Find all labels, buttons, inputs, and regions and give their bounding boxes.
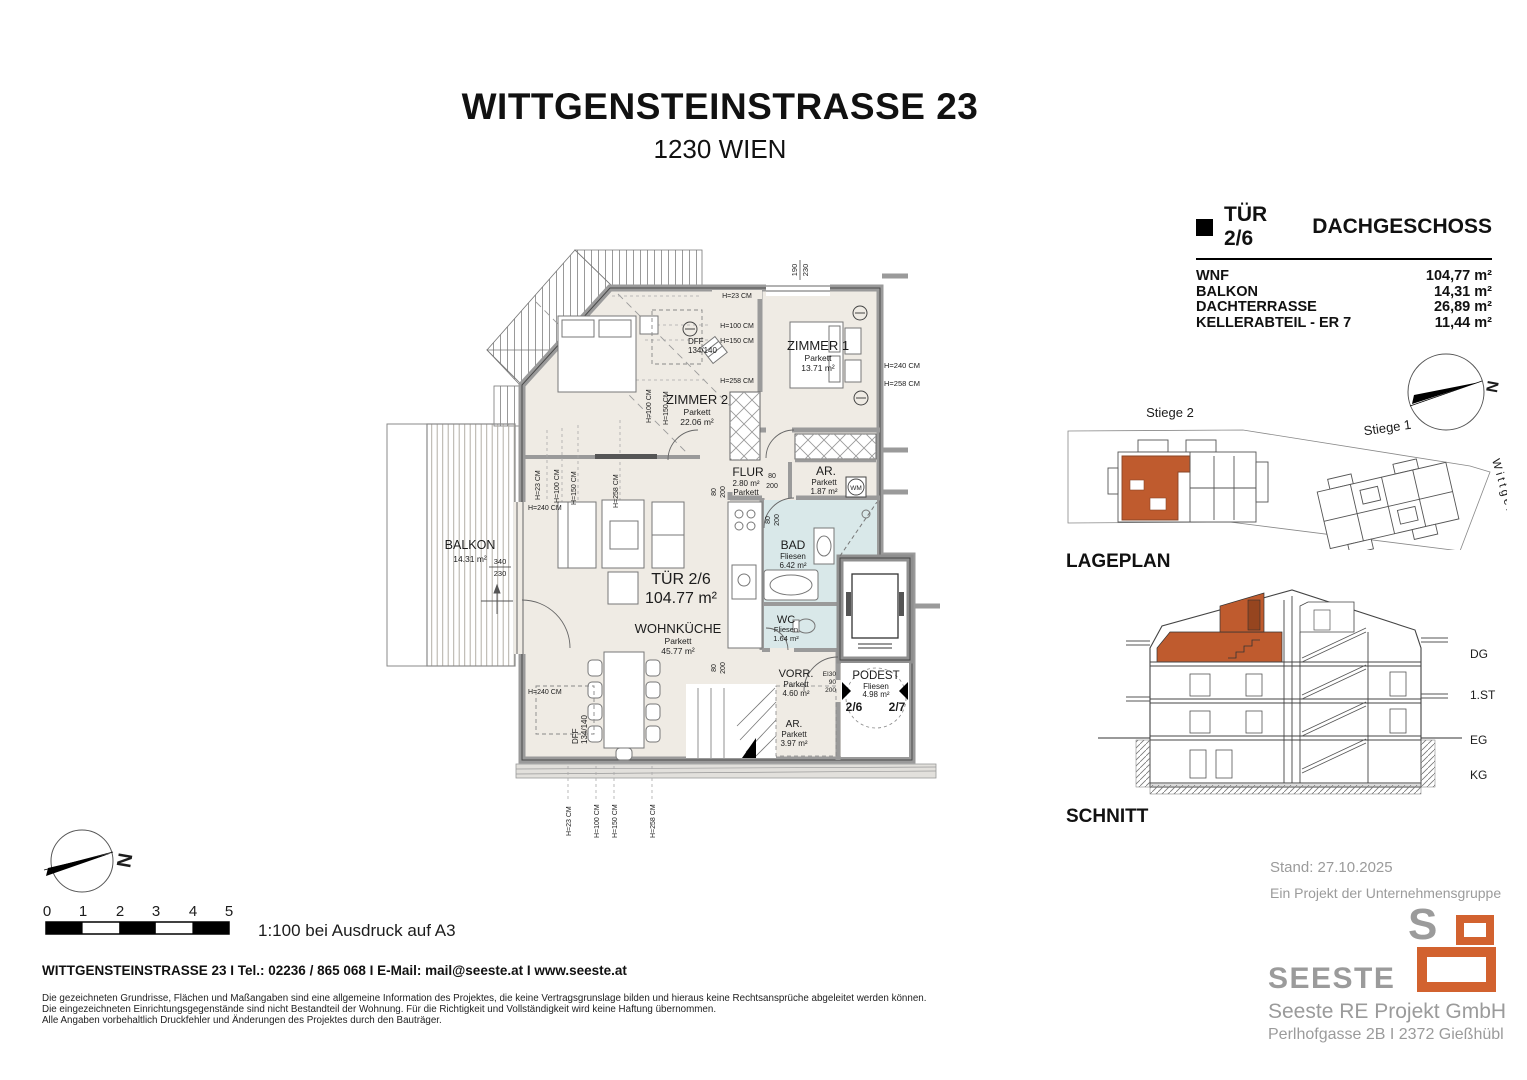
svg-text:190: 190 <box>790 264 799 277</box>
svg-text:80: 80 <box>711 488 718 496</box>
svg-text:H=240 CM: H=240 CM <box>528 505 562 512</box>
svg-text:DG: DG <box>1470 647 1488 661</box>
room-label: AR. <box>816 464 836 478</box>
svg-text:2: 2 <box>116 903 124 920</box>
svg-text:H=150 CM: H=150 CM <box>612 804 619 838</box>
area-table: WNF 104,77 m² BALKON 14,31 m² DACHTERRAS… <box>1196 269 1492 331</box>
room-label: AR. <box>786 719 803 730</box>
company-name: Seeste RE Projekt GmbH <box>1268 1000 1506 1024</box>
group-line: Ein Projekt der Unternehmensgruppe <box>1270 885 1501 901</box>
disclaimer-line: Die gezeichneten Grundrisse, Flächen und… <box>42 993 926 1004</box>
seeste-logo-small-square-icon <box>1456 915 1494 945</box>
area-label: KELLERABTEIL - ER 7 <box>1196 316 1351 332</box>
svg-text:H=23 CM: H=23 CM <box>566 806 573 836</box>
svg-text:134/140: 134/140 <box>688 346 717 355</box>
svg-text:0: 0 <box>43 903 51 920</box>
area-value: 104,77 m² <box>1426 269 1492 285</box>
svg-text:H=258 CM: H=258 CM <box>884 379 920 388</box>
roof-edge-strip <box>516 764 936 778</box>
street-label: Wittgensteinstr. <box>1489 458 1507 550</box>
svg-text:H=23 CM: H=23 CM <box>722 293 752 300</box>
lageplan-compass-icon: N <box>1408 354 1501 430</box>
svg-text:1.64 m²: 1.64 m² <box>773 634 799 643</box>
schnitt-title: SCHNITT <box>1066 806 1148 828</box>
level-labels: DG 1.ST EG KG <box>1470 647 1496 782</box>
svg-text:Parkett: Parkett <box>805 353 833 363</box>
svg-text:Parkett: Parkett <box>684 407 712 417</box>
disclaimer-line: Die eingezeichneten Einrichtungsgegenstä… <box>42 1004 926 1015</box>
area-row: WNF 104,77 m² <box>1196 269 1492 285</box>
svg-text:200: 200 <box>825 687 836 694</box>
svg-text:DFF: DFF <box>571 728 580 744</box>
svg-text:2.80 m²: 2.80 m² <box>732 479 759 488</box>
svg-text:H=100 CM: H=100 CM <box>720 323 754 330</box>
area-label: BALKON <box>1196 285 1258 301</box>
unit-label: TÜR 2/6 <box>651 570 711 588</box>
svg-text:Parkett: Parkett <box>783 680 809 689</box>
svg-text:6.42 m²: 6.42 m² <box>779 561 806 570</box>
seeste-logo-s: S <box>1408 903 1437 947</box>
svg-text:3: 3 <box>152 903 160 920</box>
area-label: DACHTERRASSE <box>1196 300 1317 316</box>
svg-text:Parkett: Parkett <box>811 478 837 487</box>
svg-text:4.98 m²: 4.98 m² <box>862 690 889 699</box>
svg-text:200: 200 <box>766 483 778 490</box>
svg-text:200: 200 <box>774 514 781 526</box>
dachterrasse-outline <box>387 424 427 666</box>
area-value: 11,44 m² <box>1435 316 1492 332</box>
north-label: N <box>112 851 136 869</box>
svg-text:H=150 CM: H=150 CM <box>720 338 754 345</box>
bullet-square-icon <box>1196 219 1213 236</box>
svg-text:3.97 m²: 3.97 m² <box>780 739 807 748</box>
scale-note: 1:100 bei Ausdruck auf A3 <box>258 921 456 940</box>
contact-line: WITTGENSTEINSTRASSE 23 I Tel.: 02236 / 8… <box>42 963 627 978</box>
room-label: BAD <box>781 538 806 552</box>
svg-text:Parkett: Parkett <box>733 488 759 497</box>
room-label: PODEST <box>852 670 899 682</box>
room-label: BALKON <box>445 538 496 552</box>
schnitt-drawing: DG 1.ST EG KG <box>1060 580 1507 805</box>
washing-machine-icon: WM <box>846 477 866 497</box>
svg-text:H=100 CM: H=100 CM <box>554 469 561 503</box>
compass-scalebar: N 0 1 2 3 4 5 1:100 bei Ausdruck auf A3 <box>30 820 460 950</box>
area-row: KELLERABTEIL - ER 7 11,44 m² <box>1196 316 1492 332</box>
svg-text:80: 80 <box>765 516 772 524</box>
room-label: VORR. <box>779 668 814 680</box>
svg-text:4.60 m²: 4.60 m² <box>782 689 809 698</box>
svg-text:H=258 CM: H=258 CM <box>720 378 754 385</box>
svg-text:Fliesen: Fliesen <box>780 552 806 561</box>
svg-text:340: 340 <box>494 557 507 566</box>
svg-text:200: 200 <box>720 662 727 674</box>
svg-text:H=100 CM: H=100 CM <box>594 804 601 838</box>
svg-text:H=100 CM: H=100 CM <box>646 389 653 423</box>
disclaimer-line: Alle Angaben vorbehaltlich Druckfehler u… <box>42 1015 926 1026</box>
svg-text:DFF: DFF <box>688 337 704 346</box>
svg-text:KG: KG <box>1470 768 1487 782</box>
unit-number: TÜR 2/6 <box>1224 203 1278 251</box>
svg-text:EG: EG <box>1470 733 1487 747</box>
floor-plan-drawing: BALKON 14.31 m² ZIMMER 1 Parkett 13.71 m… <box>370 240 970 840</box>
stiege2-label: Stiege 2 <box>1146 405 1194 420</box>
svg-text:H=23 CM: H=23 CM <box>535 470 542 500</box>
unit-area-label: 104.77 m² <box>645 590 718 607</box>
room-label: FLUR <box>732 465 764 479</box>
lageplan-title: LAGEPLAN <box>1066 551 1171 573</box>
area-row: DACHTERRASSE 26,89 m² <box>1196 300 1492 316</box>
svg-text:H=150 CM: H=150 CM <box>663 391 670 425</box>
area-value: 14,31 m² <box>1434 285 1492 301</box>
svg-text:80: 80 <box>711 664 718 672</box>
lageplan-drawing: N Stiege 2 Stiege 1 Wittgensteinstr. <box>1060 350 1507 550</box>
unit-info-header: TÜR 2/6 DACHGESCHOSS <box>1196 203 1492 260</box>
elevator <box>840 558 910 660</box>
stand-date: Stand: 27.10.2025 <box>1270 859 1393 876</box>
floorplan-document: WITTGENSTEINSTRASSE 23 1230 WIEN TÜR 2/6… <box>0 0 1527 1080</box>
svg-text:4: 4 <box>189 903 197 920</box>
stiege1-label: Stiege 1 <box>1363 417 1412 438</box>
svg-text:Parkett: Parkett <box>781 730 807 739</box>
page-subtitle: 1230 WIEN <box>420 134 1020 165</box>
svg-text:WM: WM <box>850 485 862 492</box>
room-label: ZIMMER 1 <box>787 338 849 353</box>
compass-icon: N <box>44 830 136 892</box>
stiege1-building <box>1315 453 1461 550</box>
area-row: BALKON 14,31 m² <box>1196 285 1492 301</box>
svg-text:H=258 CM: H=258 CM <box>613 474 620 508</box>
svg-text:200: 200 <box>720 486 727 498</box>
room-label: ZIMMER 2 <box>666 392 728 407</box>
svg-text:80: 80 <box>768 473 776 480</box>
svg-text:230: 230 <box>494 569 507 578</box>
svg-text:Parkett: Parkett <box>665 636 693 646</box>
page-title: WITTGENSTEINSTRASSE 23 <box>420 86 1020 128</box>
room-area: 14.31 m² <box>453 554 487 564</box>
svg-text:Fliesen: Fliesen <box>774 625 798 634</box>
svg-text:90: 90 <box>829 679 837 686</box>
svg-text:230: 230 <box>801 264 810 277</box>
svg-text:H=240 CM: H=240 CM <box>884 361 920 370</box>
svg-text:5: 5 <box>225 903 233 920</box>
area-label: WNF <box>1196 269 1229 285</box>
north-label: N <box>1482 379 1501 393</box>
unit-info-panel: TÜR 2/6 DACHGESCHOSS WNF 104,77 m² BALKO… <box>1196 203 1492 331</box>
door-number: 2/7 <box>889 700 906 714</box>
svg-text:1: 1 <box>79 903 87 920</box>
seeste-logo-big-square-icon <box>1417 947 1496 992</box>
svg-text:H=150 CM: H=150 CM <box>571 471 578 505</box>
svg-text:45.77 m²: 45.77 m² <box>661 646 695 656</box>
area-value: 26,89 m² <box>1434 300 1492 316</box>
svg-text:H=258 CM: H=258 CM <box>650 804 657 838</box>
floor-name: DACHGESCHOSS <box>1312 215 1492 239</box>
svg-text:1.87 m²: 1.87 m² <box>810 487 837 496</box>
stiege2-building <box>1108 440 1268 522</box>
seeste-logo-wordmark: SEESTE <box>1268 962 1395 996</box>
disclaimer-block: Die gezeichneten Grundrisse, Flächen und… <box>42 993 926 1026</box>
svg-text:1.ST: 1.ST <box>1470 688 1496 702</box>
svg-text:134/140: 134/140 <box>580 715 589 744</box>
scale-bar: 0 1 2 3 4 5 <box>43 903 233 934</box>
svg-text:13.71 m²: 13.71 m² <box>801 363 835 373</box>
company-address: Perlhofgasse 2B I 2372 Gießhübl <box>1268 1026 1504 1044</box>
svg-text:EI30: EI30 <box>823 671 837 678</box>
svg-text:H=240 CM: H=240 CM <box>528 689 562 696</box>
svg-text:22.06 m²: 22.06 m² <box>680 417 714 427</box>
door-number: 2/6 <box>846 700 863 714</box>
room-label: WOHNKÜCHE <box>635 621 722 636</box>
section-outline <box>1150 590 1421 787</box>
